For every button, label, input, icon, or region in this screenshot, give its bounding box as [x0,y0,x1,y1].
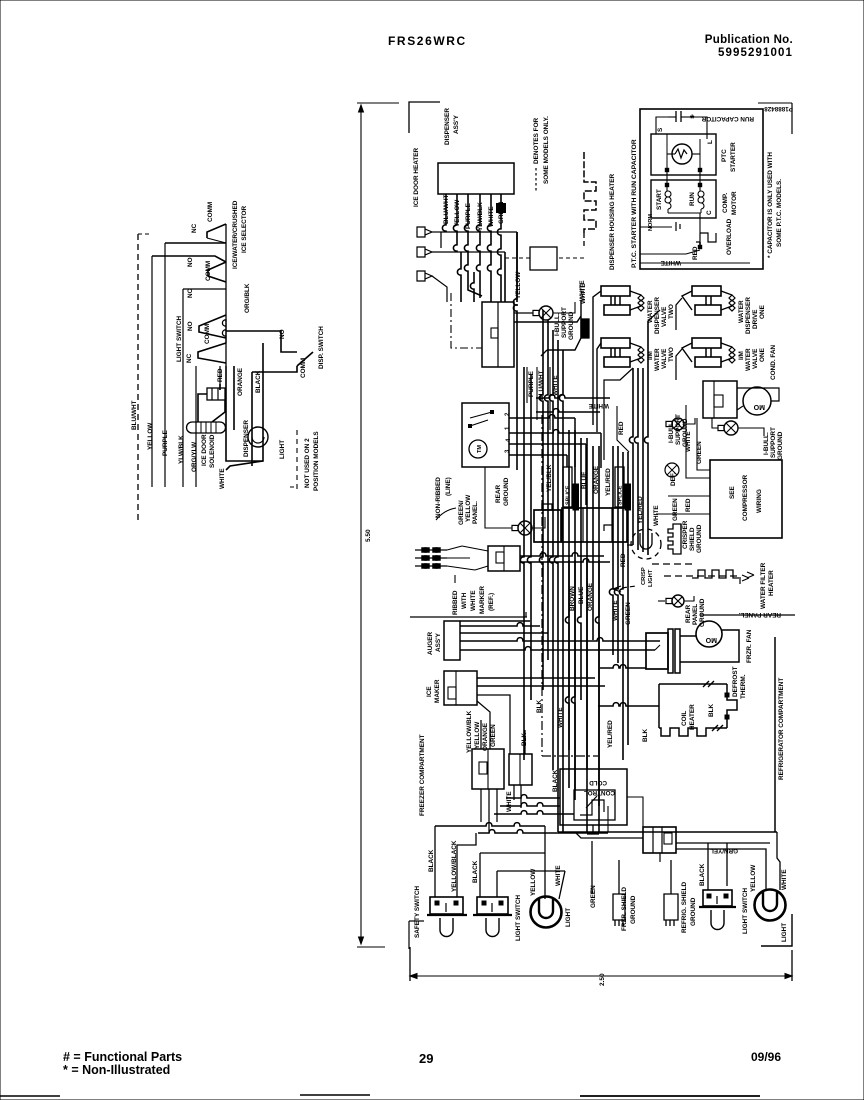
svg-text:COMM: COMM [207,202,214,222]
svg-text:TWO: TWO [668,304,675,319]
svg-text:WHITE: WHITE [589,402,609,409]
svg-text:GROUND: GROUND [696,524,703,553]
svg-text:SUPPORT: SUPPORT [675,414,682,445]
svg-text:FRZR. FAN: FRZR. FAN [746,629,753,663]
svg-text:5.50: 5.50 [365,529,372,542]
svg-text:LIGHT SWITCH: LIGHT SWITCH [176,315,183,362]
svg-text:ORANGE: ORANGE [593,465,600,494]
svg-text:YELLOW: YELLOW [515,271,522,299]
svg-text:DISP. SWITCH: DISP. SWITCH [318,326,325,369]
svg-text:SOLENOID: SOLENOID [209,434,216,468]
svg-text:WITH: WITH [461,592,468,609]
svg-text:# = Functional Parts: # = Functional Parts [63,1050,182,1064]
svg-text:BLACK: BLACK [552,769,559,792]
svg-text:YELLOW/BLK: YELLOW/BLK [466,710,473,753]
svg-text:MARKER: MARKER [479,586,486,614]
svg-text:BLU/WHT: BLU/WHT [443,194,450,224]
svg-text:HEATER: HEATER [768,570,775,596]
svg-text:COMM: COMM [300,358,307,378]
svg-text:P.T.C. STARTER WITH RUN CAPACI: P.T.C. STARTER WITH RUN CAPACITOR [631,139,638,268]
svg-text:RUN CAPACITOR: RUN CAPACITOR [701,115,754,122]
svg-text:YELLOW: YELLOW [530,868,537,896]
svg-text:RIBBED: RIBBED [452,590,459,615]
svg-text:(REF.): (REF.) [488,593,495,611]
svg-text:Publication No.: Publication No. [705,34,793,46]
svg-text:TWO: TWO [668,347,675,362]
svg-text:GREEN/: GREEN/ [458,500,465,525]
svg-text:FREEZER COMPARTMENT: FREEZER COMPARTMENT [419,734,426,816]
svg-text:GREEN: GREEN [490,724,497,747]
svg-text:2.50: 2.50 [599,973,606,986]
svg-text:SOME P.T.C. MODELS.: SOME P.T.C. MODELS. [776,179,783,247]
svg-text:YELLOW: YELLOW [465,494,472,522]
svg-text:LIGHT: LIGHT [781,923,788,942]
svg-text:WATER: WATER [738,300,745,323]
svg-text:NC: NC [186,353,193,363]
svg-text:I-BULL.: I-BULL. [763,432,770,455]
svg-text:ORANGE: ORANGE [237,367,244,396]
svg-text:09/96: 09/96 [751,1050,781,1064]
svg-text:GREEN: GREEN [672,498,679,521]
svg-text:YEL/RED: YEL/RED [607,720,614,748]
svg-text:GROUND: GROUND [690,897,697,926]
svg-text:I-BULL.: I-BULL. [668,420,675,443]
svg-text:ASS'Y: ASS'Y [435,632,442,652]
svg-text:SPLICE: SPLICE [566,485,572,505]
svg-text:WHITE: WHITE [506,791,513,812]
svg-text:RED: RED [217,368,224,382]
svg-text:YLW/BLK: YLW/BLK [477,202,484,231]
svg-text:LIGHT: LIGHT [279,440,286,459]
svg-text:LIGHT: LIGHT [648,569,654,587]
svg-text:SUPPORT: SUPPORT [770,427,777,458]
svg-text:START: START [656,189,663,210]
svg-text:PURPLE: PURPLE [162,429,169,456]
svg-text:COLD: COLD [589,779,607,786]
svg-text:RED: RED [692,246,699,260]
svg-text:NOT USED ON 2: NOT USED ON 2 [304,438,311,488]
svg-text:WHITE: WHITE [653,505,660,526]
svg-text:YELLOW: YELLOW [750,864,757,892]
svg-text:RED: RED [685,498,692,512]
svg-text:5995291001: 5995291001 [718,47,793,59]
svg-text:WHITE: WHITE [470,590,477,611]
svg-text:29: 29 [419,1051,433,1066]
svg-text:MAKER: MAKER [434,679,441,703]
svg-text:WATER: WATER [745,348,752,371]
svg-text:NO: NO [187,257,194,267]
svg-text:NON-RIBBED: NON-RIBBED [435,477,442,518]
svg-text:ONE: ONE [759,304,766,319]
svg-text:YEL/BLK: YEL/BLK [546,464,553,492]
svg-text:WHITE: WHITE [612,600,619,621]
svg-text:DISPENSER: DISPENSER [444,108,451,145]
svg-text:ORG/BLK: ORG/BLK [244,283,251,313]
svg-text:ICE/WATER/CRUSHED: ICE/WATER/CRUSHED [232,200,239,269]
svg-text:(LINE): (LINE) [445,477,452,496]
svg-text:COMM: COMM [204,324,211,344]
svg-text:STARTER: STARTER [730,142,737,172]
svg-text:ICE DOOR: ICE DOOR [201,434,208,466]
svg-text:BLACK: BLACK [428,849,435,872]
svg-text:YELLOW/BLACK: YELLOW/BLACK [451,840,458,892]
svg-text:S: S [657,127,664,132]
svg-text:FRS26WRC: FRS26WRC [388,34,467,48]
svg-text:BLK: BLK [642,728,649,742]
svg-text:PURPLE: PURPLE [465,202,472,229]
svg-text:VALVE: VALVE [661,348,668,369]
svg-text:THERM.: THERM. [740,674,747,699]
svg-text:COMP.: COMP. [722,193,729,213]
svg-text:REFRIG. SHIELD: REFRIG. SHIELD [681,881,688,933]
svg-text:REFRIGERATOR COMPARTMENT: REFRIGERATOR COMPARTMENT [778,678,785,780]
svg-text:NO: NO [279,329,286,339]
svg-text:BLK: BLK [708,703,715,717]
svg-text:* CAPACITOR IS ONLY USED WITH: * CAPACITOR IS ONLY USED WITH [767,152,774,258]
svg-text:YELLOW: YELLOW [474,721,481,749]
svg-text:TM: TM [477,445,483,453]
svg-text:I-BULL.: I-BULL. [554,313,561,336]
svg-text:REAR: REAR [685,605,692,623]
svg-text:REAR: REAR [495,485,502,503]
svg-text:WHITE: WHITE [488,206,495,227]
svg-text:GROUND: GROUND [503,477,510,506]
svg-text:L: L [707,140,714,144]
svg-text:GROUND: GROUND [630,895,637,924]
svg-text:BLACK: BLACK [255,370,262,393]
svg-text:DISPENSER: DISPENSER [243,420,250,457]
svg-text:MO: MO [753,403,765,410]
svg-text:BLACK: BLACK [472,860,479,883]
svg-text:MOTOR: MOTOR [731,191,738,215]
svg-text:YEL/RED: YEL/RED [605,468,612,496]
svg-text:VALVE: VALVE [752,348,759,369]
svg-text:GROUND: GROUND [682,418,689,447]
svg-text:BLUE: BLUE [581,471,588,489]
svg-text:DEF.: DEF. [670,472,677,486]
svg-text:VALVE: VALVE [661,306,668,327]
svg-text:WHITE: WHITE [781,869,788,890]
svg-text:ICE SELECTOR: ICE SELECTOR [241,206,248,253]
svg-text:NC: NC [191,223,198,233]
svg-text:COMPRESSOR: COMPRESSOR [742,474,749,521]
svg-text:BROWN: BROWN [569,586,576,611]
svg-text:DEFROST: DEFROST [732,666,739,697]
svg-text:PTC: PTC [721,149,728,162]
svg-text:FRZR. SHIELD: FRZR. SHIELD [621,887,628,931]
svg-text:SOME MODELS ONLY.: SOME MODELS ONLY. [543,116,550,184]
svg-text:GREEN: GREEN [498,201,505,224]
svg-text:ORANGE: ORANGE [587,582,594,611]
svg-text:WHITE: WHITE [557,707,564,728]
svg-text:LIGHT SWITCH: LIGHT SWITCH [515,894,522,941]
svg-text:WIRING: WIRING [756,489,763,513]
svg-text:* = Non-Illustrated: * = Non-Illustrated [63,1063,170,1077]
svg-text:POSITION MODELS: POSITION MODELS [313,431,320,491]
svg-text:WATER FILTER: WATER FILTER [760,562,767,609]
svg-text:ONE: ONE [759,347,766,362]
svg-text:AUGER: AUGER [427,632,434,655]
svg-text:*: * [690,113,695,125]
svg-text:WHITE: WHITE [579,280,586,301]
svg-text:YELLOW: YELLOW [454,199,461,227]
svg-text:RED: RED [620,553,627,567]
svg-text:WHITE: WHITE [219,468,226,489]
svg-text:WHITE: WHITE [661,259,681,266]
svg-text:I/M: I/M [738,351,745,360]
svg-text:WATER: WATER [654,348,661,371]
svg-text:P1888428: P1888428 [764,105,793,112]
svg-text:SHIELD: SHIELD [689,527,696,551]
svg-text:DRIVE: DRIVE [752,309,759,329]
svg-text:RUN: RUN [689,192,696,206]
svg-text:CRISP: CRISP [641,567,647,585]
svg-text:NC: NC [187,288,194,298]
svg-text:COND. FAN: COND. FAN [770,344,777,380]
svg-text:BLUE: BLUE [578,586,585,604]
svg-text:NORM: NORM [648,214,654,231]
svg-text:BLU/WHT: BLU/WHT [131,400,138,430]
svg-text:C: C [706,210,713,215]
svg-text:COIL: COIL [681,711,688,726]
svg-text:PANEL.: PANEL. [472,501,479,524]
svg-text:LIGHT: LIGHT [565,908,572,927]
svg-text:CRISPER: CRISPER [682,520,689,549]
svg-text:DENOTES FOR: DENOTES FOR [533,117,540,164]
svg-text:YLW/BLK: YLW/BLK [178,435,185,464]
svg-text:GREEN: GREEN [625,602,632,625]
svg-text:DISPENSER HOUSING HEATER: DISPENSER HOUSING HEATER [609,174,616,270]
svg-text:NO: NO [187,321,194,331]
svg-text:RED: RED [618,421,625,435]
svg-text:HEATER: HEATER [689,704,696,730]
svg-text:LIGHT SWITCH: LIGHT SWITCH [742,887,749,934]
svg-text:YELLOW: YELLOW [147,422,154,450]
svg-text:SAFETY SWITCH: SAFETY SWITCH [414,886,421,938]
svg-text:MO: MO [705,636,717,643]
svg-text:ICE: ICE [426,686,433,697]
svg-text:GRN/YEL: GRN/YEL [710,847,738,854]
svg-text:SEE: SEE [729,485,736,499]
svg-text:ORANGE: ORANGE [482,722,489,751]
svg-text:GROUND: GROUND [568,311,575,340]
svg-text:BLK: BLK [521,732,528,746]
svg-text:ASS'Y: ASS'Y [453,114,460,134]
svg-text:BLK: BLK [536,699,543,713]
svg-text:GREEN: GREEN [590,885,597,908]
svg-text:WHITE: WHITE [555,865,562,886]
svg-text:PANEL: PANEL [692,604,699,625]
svg-text:OVERLOAD: OVERLOAD [726,218,733,255]
svg-text:BLACK: BLACK [699,863,706,886]
svg-text:DISPENSER: DISPENSER [745,297,752,334]
svg-text:ICE DOOR HEATER: ICE DOOR HEATER [413,147,420,207]
svg-text:ORG/YLW: ORG/YLW [191,441,198,472]
svg-text:GROUND: GROUND [777,431,784,460]
